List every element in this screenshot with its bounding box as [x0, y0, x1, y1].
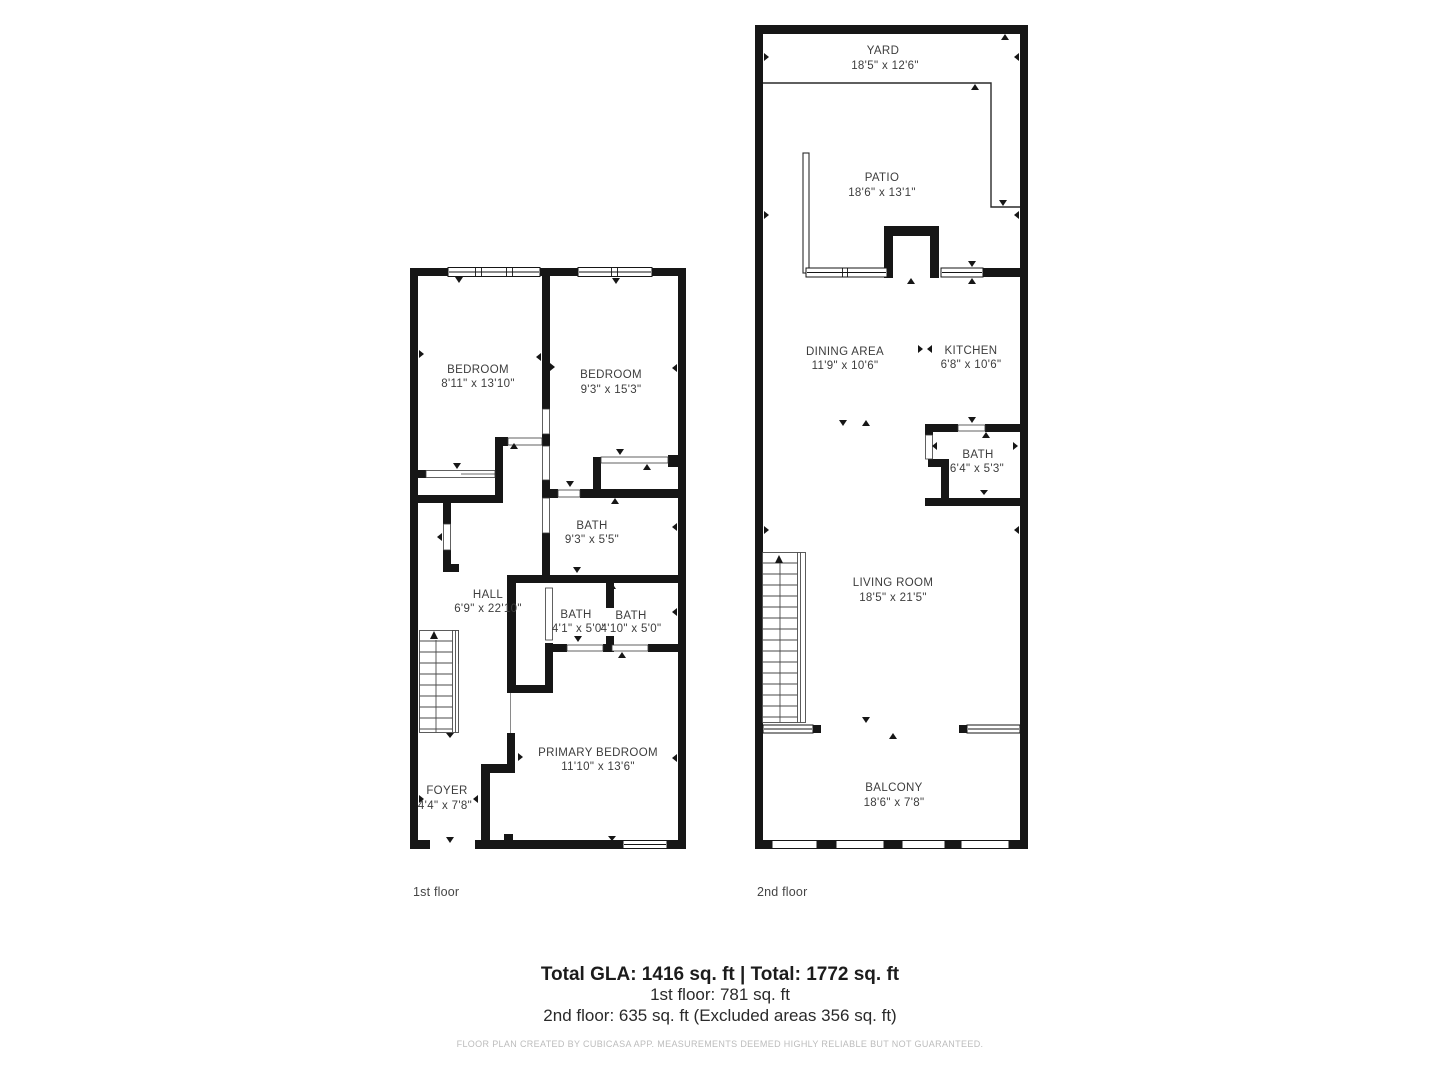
staircase-icon	[763, 553, 806, 723]
room-dims-bedroom-right: 9'3" x 15'3"	[581, 384, 642, 396]
second-floor-area: 2nd floor: 635 sq. ft (Excluded areas 35…	[0, 1006, 1440, 1027]
room-name-bath2: BATH	[962, 449, 993, 461]
room-name-bath-main: BATH	[576, 520, 607, 532]
area-summary: Total GLA: 1416 sq. ft | Total: 1772 sq.…	[0, 964, 1440, 1049]
room-name-primary-bedroom: PRIMARY BEDROOM	[538, 747, 658, 759]
room-dims-bedroom-left: 8'11" x 13'10"	[441, 378, 515, 390]
room-dims-living: 18'5" x 21'5"	[859, 592, 927, 604]
room-name-bedroom-left: BEDROOM	[447, 364, 509, 376]
room-dims-foyer: 4'4" x 7'8"	[418, 800, 472, 812]
total-gla-text: Total GLA: 1416 sq. ft | Total: 1772 sq.…	[0, 964, 1440, 985]
room-dims-primary-bedroom: 11'10" x 13'6"	[561, 761, 635, 773]
room-dims-yard: 18'5" x 12'6"	[851, 60, 919, 72]
second-floor-caption: 2nd floor	[757, 885, 807, 899]
room-dims-dining: 11'9" x 10'6"	[812, 360, 879, 372]
room-name-bath-left: BATH	[560, 609, 591, 621]
first-floor-caption: 1st floor	[413, 885, 459, 899]
room-name-bedroom-right: BEDROOM	[580, 369, 642, 381]
room-name-kitchen: KITCHEN	[945, 345, 998, 357]
room-dims-bath2: 6'4" x 5'3"	[950, 463, 1004, 475]
room-dims-balcony: 18'6" x 7'8"	[864, 797, 925, 809]
room-dims-bath-main: 9'3" x 5'5"	[565, 534, 619, 546]
first-floor-plan	[410, 268, 686, 850]
first-floor-walls	[410, 268, 686, 849]
room-dims-hall: 6'9" x 22'10"	[454, 603, 522, 615]
room-name-foyer: FOYER	[426, 785, 467, 797]
opening-marker-icon	[918, 345, 932, 353]
room-name-dining: DINING AREA	[806, 346, 884, 358]
staircase-icon	[420, 631, 459, 739]
room-name-hall: HALL	[473, 589, 503, 601]
room-dims-bath-left: 4'1" x 5'0"	[552, 623, 606, 635]
room-dims-patio: 18'6" x 13'1"	[848, 187, 916, 199]
disclaimer-text: FLOOR PLAN CREATED BY CUBICASA APP. MEAS…	[0, 1039, 1440, 1049]
room-name-bath-right: BATH	[615, 610, 646, 622]
room-name-balcony: BALCONY	[865, 782, 922, 794]
first-floor-area: 1st floor: 781 sq. ft	[0, 985, 1440, 1006]
room-name-living: LIVING ROOM	[853, 577, 934, 589]
second-floor-plan	[755, 25, 1028, 849]
room-name-yard: YARD	[867, 45, 900, 57]
room-dims-bath-right: 4'10" x 5'0"	[601, 623, 662, 635]
floor-plan-page: { "floor1": { "label": "1st floor", "roo…	[0, 0, 1440, 1080]
floor-plan-drawing	[0, 0, 1440, 1080]
patio-fence	[803, 153, 809, 273]
room-name-patio: PATIO	[865, 172, 900, 184]
room-dims-kitchen: 6'8" x 10'6"	[941, 359, 1002, 371]
